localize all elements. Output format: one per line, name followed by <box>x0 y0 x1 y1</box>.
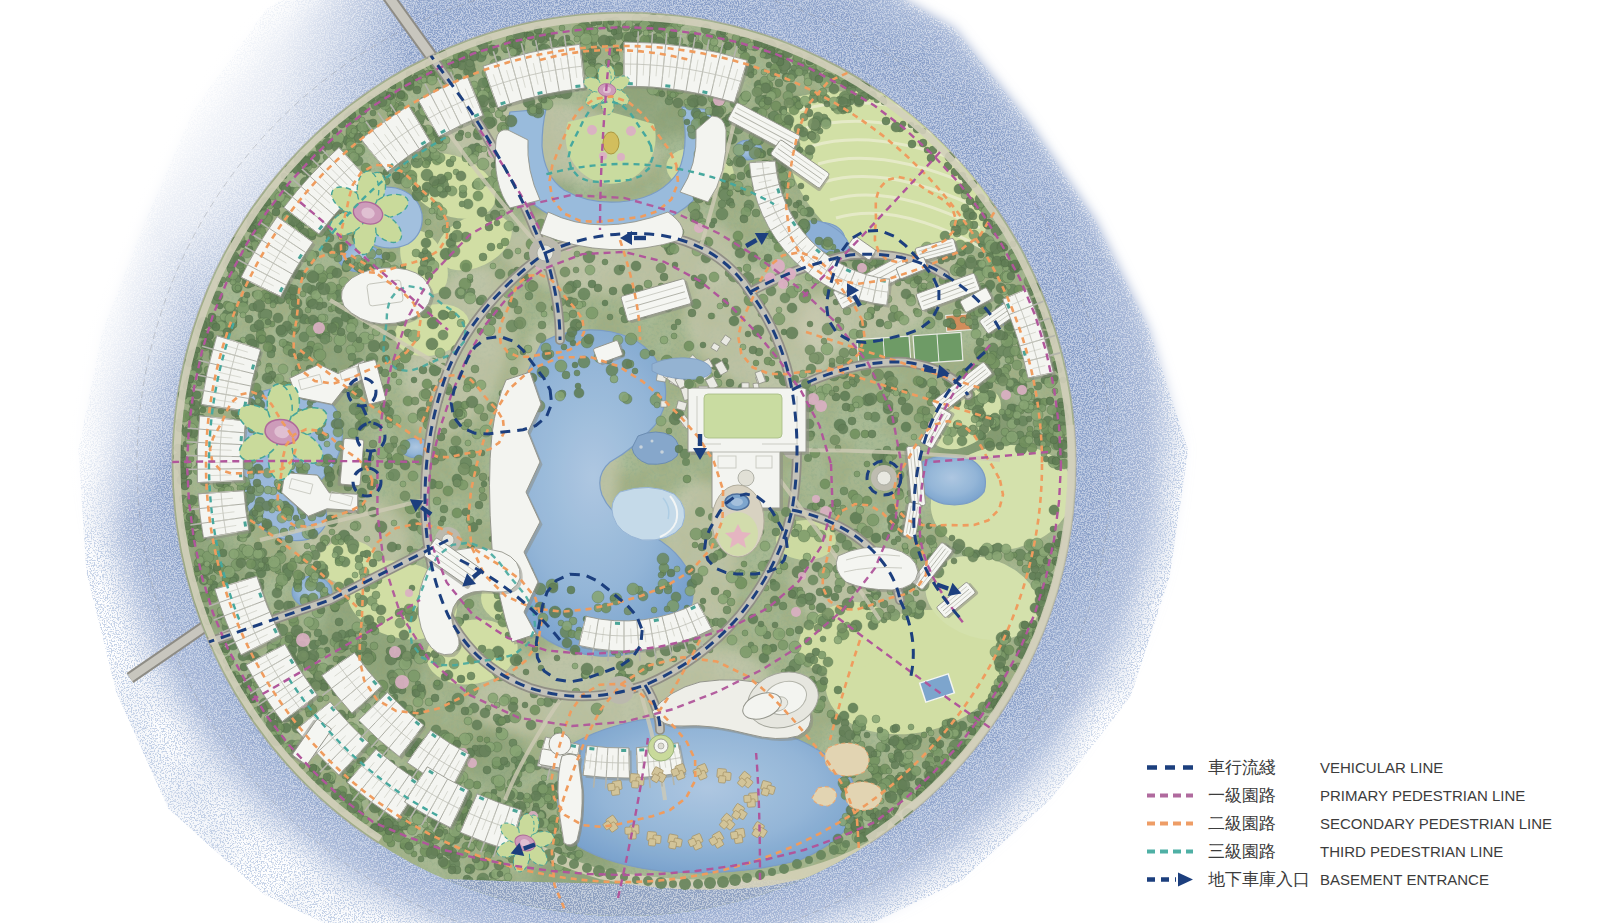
svg-text:SECONDARY PEDESTRIAN LINE: SECONDARY PEDESTRIAN LINE <box>1320 815 1552 832</box>
svg-text:VEHICULAR LINE: VEHICULAR LINE <box>1320 759 1443 776</box>
svg-text:地下車庫入口: 地下車庫入口 <box>1208 870 1310 889</box>
svg-text:BASEMENT ENTRANCE: BASEMENT ENTRANCE <box>1320 871 1489 888</box>
svg-text:三級園路: 三級園路 <box>1208 842 1276 861</box>
svg-text:PRIMARY PEDESTRIAN LINE: PRIMARY PEDESTRIAN LINE <box>1320 787 1525 804</box>
svg-text:THIRD PEDESTRIAN LINE: THIRD PEDESTRIAN LINE <box>1320 843 1503 860</box>
svg-text:車行流綫: 車行流綫 <box>1208 758 1276 777</box>
svg-text:二級園路: 二級園路 <box>1208 814 1276 833</box>
svg-text:一級園路: 一級園路 <box>1208 786 1276 805</box>
